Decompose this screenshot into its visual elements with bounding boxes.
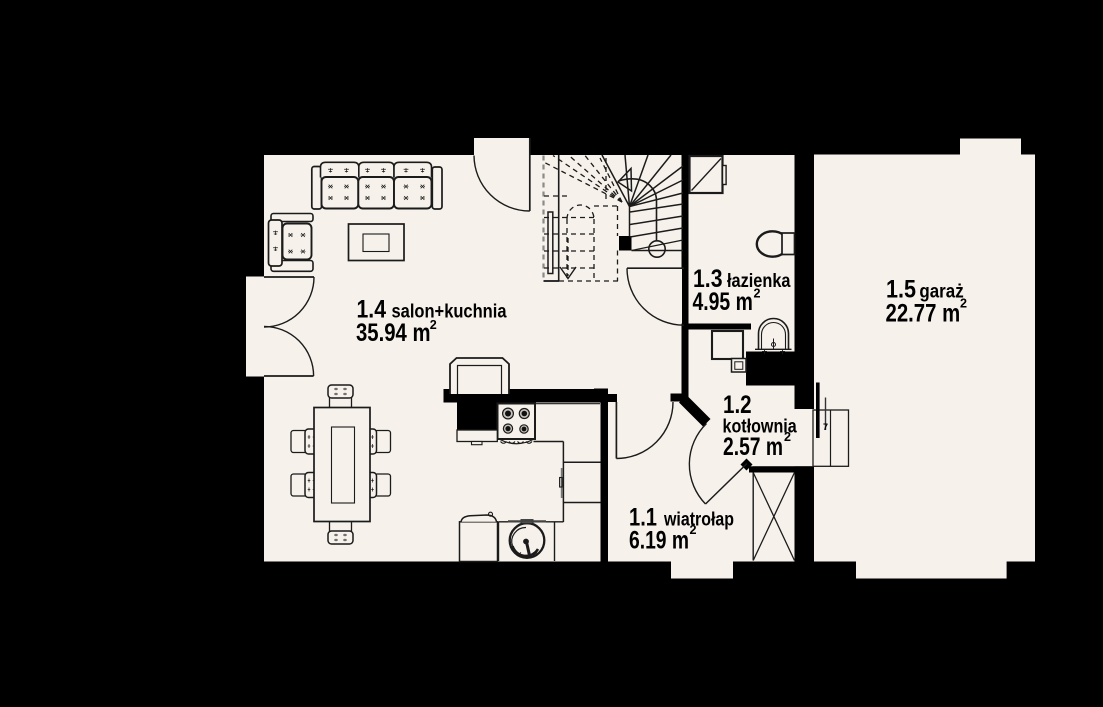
- svg-text:7: 7: [823, 422, 828, 432]
- svg-text:22.77 m: 22.77 m: [886, 299, 961, 327]
- svg-text:2: 2: [754, 287, 761, 301]
- svg-text:2: 2: [784, 430, 791, 444]
- svg-text:35.94 m: 35.94 m: [356, 319, 431, 347]
- svg-text:6.19 m: 6.19 m: [629, 527, 689, 555]
- svg-text:2.57 m: 2.57 m: [723, 433, 783, 461]
- svg-text:2: 2: [430, 318, 437, 332]
- svg-text:2: 2: [690, 523, 697, 537]
- svg-text:4.95 m: 4.95 m: [693, 288, 753, 316]
- svg-text:2: 2: [960, 297, 967, 311]
